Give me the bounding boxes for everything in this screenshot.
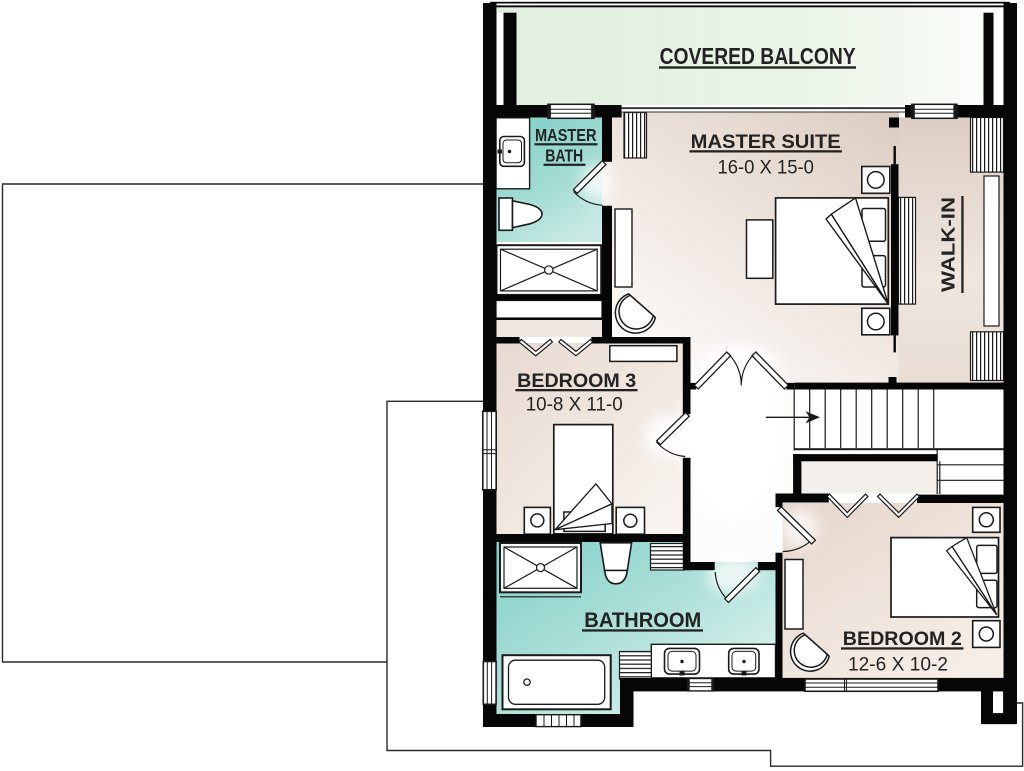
- svg-text:BEDROOM 3: BEDROOM 3: [517, 370, 636, 392]
- svg-text:BATH: BATH: [545, 146, 583, 166]
- svg-text:10-8 X 11-0: 10-8 X 11-0: [526, 394, 623, 415]
- svg-text:MASTER SUITE: MASTER SUITE: [691, 131, 841, 153]
- svg-text:MASTER: MASTER: [535, 125, 597, 145]
- svg-text:COVERED BALCONY: COVERED BALCONY: [660, 43, 856, 69]
- svg-text:WALK-IN: WALK-IN: [938, 197, 959, 292]
- svg-text:12-6 X 10-2: 12-6 X 10-2: [848, 655, 948, 676]
- svg-text:16-0 X 15-0: 16-0 X 15-0: [717, 157, 814, 178]
- svg-text:BATHROOM: BATHROOM: [584, 608, 701, 632]
- svg-text:BEDROOM 2: BEDROOM 2: [843, 628, 962, 650]
